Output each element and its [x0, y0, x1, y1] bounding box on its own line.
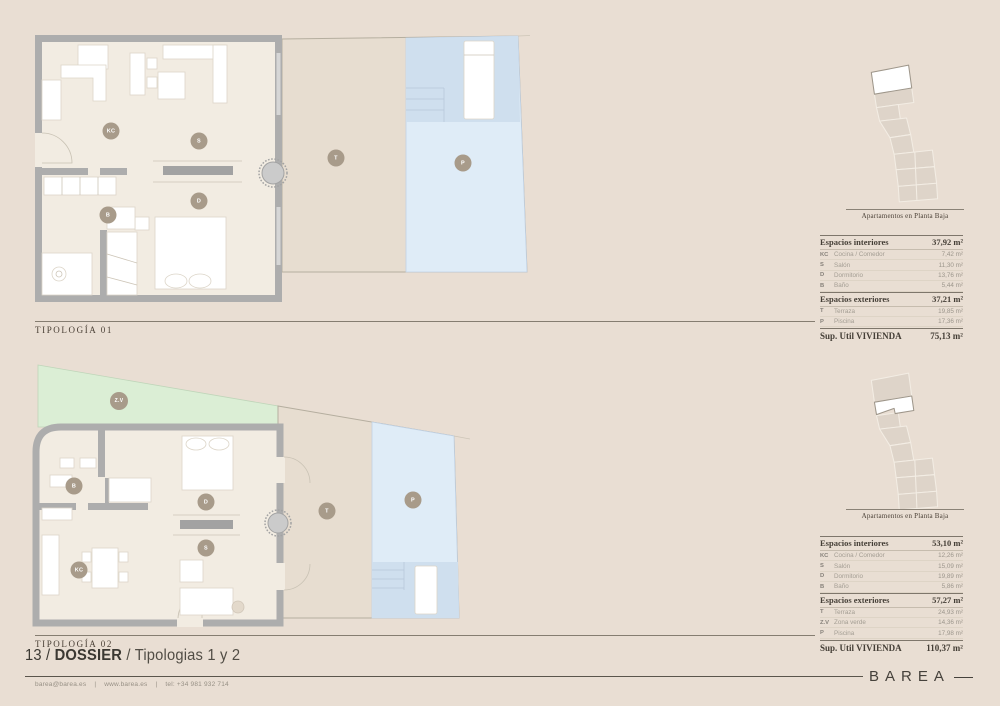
floorplan-typology-1: KC S B D T P [30, 25, 530, 337]
room-code: KC [820, 252, 834, 258]
sitemap-key-2 [848, 368, 963, 513]
room-area: 5,86 m² [942, 583, 963, 590]
interior-rows: KC Cocina / Comedor 12,26 m² S Salón 15,… [820, 551, 963, 593]
sitemap-key-1 [848, 60, 963, 205]
contact-separator: | [156, 681, 158, 688]
exterior-rows: T Terraza 24,93 m² Z.V Zona verde 14,36 … [820, 608, 963, 639]
table-row: D Dormitorio 13,76 m² [820, 271, 963, 281]
room-name: Baño [834, 282, 849, 289]
section-value: 57,27 m² [932, 595, 963, 605]
room-label-terraza: T [319, 503, 336, 520]
room-code: T [820, 308, 834, 314]
room-label-salon: S [191, 133, 208, 150]
room-name: Cocina / Comedor [834, 552, 885, 559]
total-value: 75,13 m² [930, 331, 963, 341]
contact-info: barea@barea.es | www.barea.es | tel: +34… [35, 681, 235, 688]
contact-web: www.barea.es [104, 681, 147, 688]
room-label-kc: KC [103, 123, 120, 140]
room-name: Salón [834, 262, 850, 269]
room-name: Baño [834, 583, 849, 590]
section-value: 37,21 m² [932, 294, 963, 304]
room-label-salon: S [198, 540, 215, 557]
exterior-section-header: Espacios exteriores 57,27 m² [820, 593, 963, 608]
area-table-typology-1: Espacios interiores 37,92 m² KC Cocina /… [820, 235, 963, 341]
room-code: B [820, 584, 834, 590]
room-area: 14,36 m² [938, 619, 963, 626]
brand-dash [954, 677, 973, 678]
table-row: S Salón 11,30 m² [820, 260, 963, 270]
room-area: 11,30 m² [939, 262, 963, 269]
room-area: 5,44 m² [942, 282, 963, 289]
section-value: 37,92 m² [932, 237, 963, 247]
table-row: KC Cocina / Comedor 7,42 m² [820, 250, 963, 260]
table-row: T Terraza 24,93 m² [820, 608, 963, 618]
page-title: 13 / DOSSIER / Tipologias 1 y 2 [25, 647, 240, 665]
room-code: P [820, 630, 834, 636]
exterior-rows: T Terraza 19,85 m² P Piscina 17,36 m² [820, 307, 963, 328]
room-label-terraza: T [328, 150, 345, 167]
room-area: 17,36 m² [938, 318, 963, 325]
footer-divider-line [25, 676, 863, 677]
table-row: KC Cocina / Comedor 12,26 m² [820, 551, 963, 561]
section-label: Espacios exteriores [820, 294, 889, 304]
room-name: Piscina [834, 630, 854, 637]
room-label-piscina: P [405, 492, 422, 509]
interior-section-header: Espacios interiores 53,10 m² [820, 536, 963, 551]
room-area: 17,98 m² [938, 630, 963, 637]
interior-rows: KC Cocina / Comedor 7,42 m² S Salón 11,3… [820, 250, 963, 292]
room-code: P [820, 319, 834, 325]
room-name: Piscina [834, 318, 854, 325]
contact-phone: tel: +34 981 932 714 [165, 681, 228, 688]
floorplan-typology-2: Z.V B KC D S T P [30, 360, 470, 635]
table-row: Z.V Zona verde 14,36 m² [820, 618, 963, 628]
room-name: Cocina / Comedor [834, 251, 885, 258]
room-area: 15,09 m² [938, 563, 963, 570]
room-code: KC [820, 553, 834, 559]
room-code: S [820, 262, 834, 268]
table-row: S Salón 15,09 m² [820, 561, 963, 571]
sitemap-caption-1: Apartamentos en Planta Baja [846, 209, 964, 220]
table-row: B Baño 5,86 m² [820, 582, 963, 592]
total-row: Sup. Util VIVIENDA 110,37 m² [820, 640, 963, 653]
total-label: Sup. Util VIVIENDA [820, 643, 902, 653]
room-name: Dormitorio [834, 272, 863, 279]
brand-logo: BAREA [869, 668, 950, 685]
room-area: 19,89 m² [938, 573, 963, 580]
dossier-page: KC S B D T P [0, 0, 1000, 706]
page-subtitle: / Tipologias 1 y 2 [126, 647, 240, 664]
typology-1-title: TIPOLOGÍA 01 [35, 321, 815, 335]
table-row: D Dormitorio 19,89 m² [820, 572, 963, 582]
room-label-dormitorio: D [191, 193, 208, 210]
table-row: P Piscina 17,98 m² [820, 628, 963, 638]
interior-section-header: Espacios interiores 37,92 m² [820, 235, 963, 250]
room-label-piscina: P [455, 155, 472, 172]
area-table-typology-2: Espacios interiores 53,10 m² KC Cocina /… [820, 536, 963, 653]
table-row: P Piscina 17,36 m² [820, 317, 963, 327]
room-name: Salón [834, 563, 850, 570]
room-code: D [820, 272, 834, 278]
room-code: B [820, 283, 834, 289]
section-label: Espacios interiores [820, 237, 889, 247]
total-value: 110,37 m² [926, 643, 963, 653]
section-value: 53,10 m² [932, 538, 963, 548]
exterior-section-header: Espacios exteriores 37,21 m² [820, 292, 963, 307]
room-area: 12,26 m² [938, 552, 963, 559]
room-name: Dormitorio [834, 573, 863, 580]
room-label-zona-verde: Z.V [110, 392, 128, 410]
contact-email: barea@barea.es [35, 681, 86, 688]
room-name: Terraza [834, 308, 855, 315]
sitemap-caption-2: Apartamentos en Planta Baja [846, 509, 964, 520]
section-label: Espacios interiores [820, 538, 889, 548]
section-label: Espacios exteriores [820, 595, 889, 605]
contact-separator: | [94, 681, 96, 688]
room-area: 19,85 m² [938, 308, 963, 315]
room-code: Z.V [820, 620, 834, 626]
room-name: Terraza [834, 609, 855, 616]
room-code: D [820, 573, 834, 579]
page-number: 13 / [25, 647, 50, 664]
floorplan-1-drawing [30, 25, 530, 337]
room-code: T [820, 609, 834, 615]
room-area: 24,93 m² [938, 609, 963, 616]
total-row: Sup. Util VIVIENDA 75,13 m² [820, 328, 963, 341]
total-label: Sup. Util VIVIENDA [820, 331, 902, 341]
document-title: DOSSIER [55, 647, 123, 664]
table-row: T Terraza 19,85 m² [820, 307, 963, 317]
room-label-bano: B [100, 207, 117, 224]
room-label-kc: KC [71, 562, 88, 579]
room-label-dormitorio: D [198, 494, 215, 511]
table-row: B Baño 5,44 m² [820, 281, 963, 291]
room-name: Zona verde [834, 619, 866, 626]
room-code: S [820, 563, 834, 569]
room-area: 7,42 m² [942, 251, 963, 258]
room-label-bano: B [66, 478, 83, 495]
room-area: 13,76 m² [938, 272, 963, 279]
